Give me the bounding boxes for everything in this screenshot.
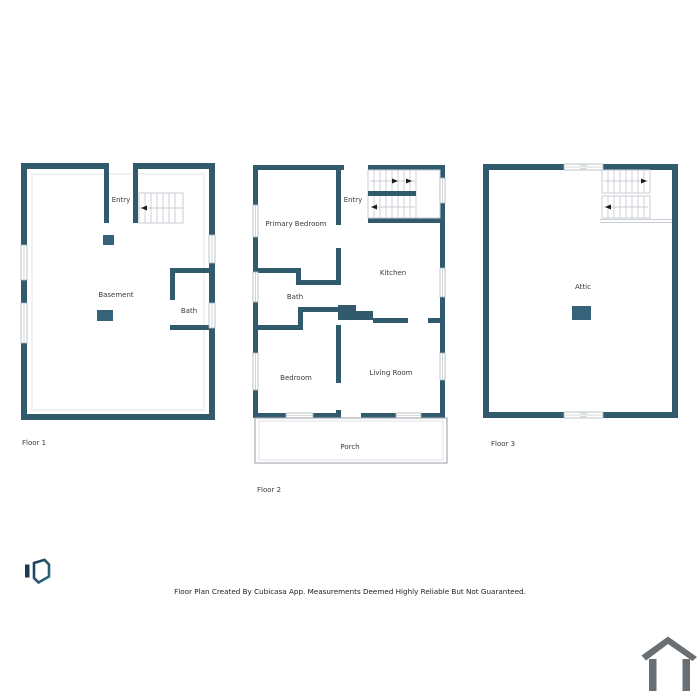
floor2-label: Floor 2 <box>257 486 281 494</box>
room-label-entry: Entry <box>344 196 363 204</box>
floor1-plan: Basement Entry Bath Floor 1 <box>21 163 215 447</box>
house-left-leg <box>649 659 657 691</box>
room-label-kitchen: Kitchen <box>380 269 406 277</box>
floor3-plan: Attic Floor 3 <box>483 164 678 448</box>
floor3-furniture <box>572 306 591 320</box>
floor2-plan: Primary Bedroom Entry Kitchen Bath Bedro… <box>253 165 447 494</box>
room-label-basement: Basement <box>98 291 134 299</box>
house-icon <box>642 637 698 692</box>
room-label-living-room: Living Room <box>370 369 413 377</box>
floor3-label: Floor 3 <box>491 440 515 448</box>
chimney-block <box>356 311 373 320</box>
house-right-leg <box>683 659 691 691</box>
room-label-entry: Entry <box>112 196 131 204</box>
room-label-bedroom: Bedroom <box>280 374 312 382</box>
floor2-porch-outline <box>255 418 447 463</box>
room-label-porch: Porch <box>340 443 359 451</box>
floor1-furniture <box>97 235 114 321</box>
room-label-bath: Bath <box>181 307 197 315</box>
floor1-label: Floor 1 <box>22 439 46 447</box>
floor1-staircase <box>139 193 183 223</box>
floor3-windows <box>564 164 603 418</box>
house-roof <box>642 637 698 662</box>
room-label-bath: Bath <box>287 293 303 301</box>
cubicasa-logo <box>25 560 49 583</box>
logo-bar <box>25 565 30 578</box>
disclaimer-text: Floor Plan Created By Cubicasa App. Meas… <box>174 587 526 596</box>
room-label-attic: Attic <box>575 283 591 291</box>
floor3-staircase <box>600 170 672 223</box>
floor2-staircase <box>368 170 440 218</box>
furniture-block <box>103 235 114 245</box>
floorplan-canvas: Basement Entry Bath Floor 1 <box>0 0 700 700</box>
room-label-primary-bedroom: Primary Bedroom <box>266 220 327 228</box>
chimney-block <box>338 305 356 320</box>
furniture-block <box>97 310 113 321</box>
furniture-block <box>572 306 591 320</box>
logo-d-shape <box>34 560 49 583</box>
